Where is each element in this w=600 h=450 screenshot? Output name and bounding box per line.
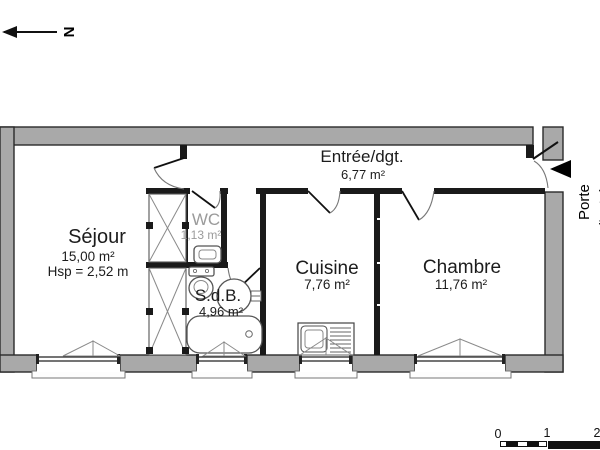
window-cuisine bbox=[299, 354, 352, 372]
room-label-sdb: S.d.B. bbox=[195, 287, 241, 305]
room-area-cuisine: 7,76 m² bbox=[304, 278, 350, 292]
entrance-door-label-2: d'entrée bbox=[596, 150, 600, 230]
door-cuisine bbox=[308, 191, 340, 213]
room-label-sejour: Séjour bbox=[68, 227, 126, 248]
room-label-chambre: Chambre bbox=[423, 258, 501, 278]
window-casement-marks bbox=[63, 338, 502, 356]
wall-bottom-e bbox=[505, 355, 563, 372]
entrance-jamb-top bbox=[526, 145, 534, 158]
closet bbox=[146, 194, 189, 355]
corridor-wall-2 bbox=[220, 188, 228, 194]
scale-bar-right bbox=[548, 441, 600, 449]
room-label-wc: WC bbox=[192, 211, 220, 229]
floor-plan-svg bbox=[0, 0, 600, 450]
sill-sdb bbox=[192, 371, 252, 378]
room-label-cuisine: Cuisine bbox=[295, 259, 358, 279]
wall-bottom-b bbox=[120, 355, 197, 372]
corridor-wall-3 bbox=[256, 188, 308, 194]
entrance-arrow-icon bbox=[550, 160, 571, 178]
corridor-wall-5 bbox=[434, 188, 545, 194]
toilet-icon bbox=[194, 246, 221, 263]
room-area-sejour: 15,00 m² bbox=[61, 250, 114, 264]
north-label: N bbox=[61, 23, 79, 41]
wc-wall-right bbox=[221, 194, 227, 268]
window-sdb bbox=[196, 354, 247, 372]
north-arrowhead-icon bbox=[2, 26, 17, 38]
window-sejour bbox=[36, 354, 120, 372]
wall-bottom-c bbox=[247, 355, 300, 372]
north-arrow bbox=[2, 26, 57, 38]
wall-bottom-d bbox=[352, 355, 415, 372]
window-chambre bbox=[414, 354, 505, 372]
door-wc bbox=[192, 191, 220, 208]
room-area-wc: 1,13 m² bbox=[181, 229, 222, 242]
scale-bar-left bbox=[500, 441, 547, 447]
sill-cuisine bbox=[295, 371, 357, 378]
room-area-entree: 6,77 m² bbox=[341, 168, 385, 182]
room-area-sdb: 4,96 m² bbox=[199, 305, 243, 319]
scale-tick-2: 2 bbox=[594, 426, 600, 440]
wall-top bbox=[0, 127, 533, 145]
door-sejour bbox=[154, 158, 184, 189]
sill-sejour bbox=[32, 371, 125, 378]
scale-tick-0: 0 bbox=[495, 427, 502, 441]
floor-plan: Séjour 15,00 m² Hsp = 2,52 m WC 1,13 m² … bbox=[0, 0, 600, 450]
sill-chambre bbox=[410, 371, 511, 378]
entrance-door-label: Porte bbox=[576, 148, 593, 220]
sejour-door-jamb bbox=[180, 145, 187, 159]
wall-left bbox=[0, 127, 14, 372]
wall-corner-ne bbox=[543, 127, 563, 160]
door-chambre bbox=[402, 191, 434, 220]
room-area-chambre: 11,76 m² bbox=[435, 278, 487, 292]
wall-bottom-a bbox=[0, 355, 37, 372]
corridor-wall-4 bbox=[340, 188, 402, 194]
room-label-entree: Entrée/dgt. bbox=[320, 148, 403, 166]
ceiling-height-sejour: Hsp = 2,52 m bbox=[48, 265, 129, 279]
wall-right bbox=[545, 192, 563, 372]
scale-tick-1: 1 bbox=[544, 426, 551, 440]
